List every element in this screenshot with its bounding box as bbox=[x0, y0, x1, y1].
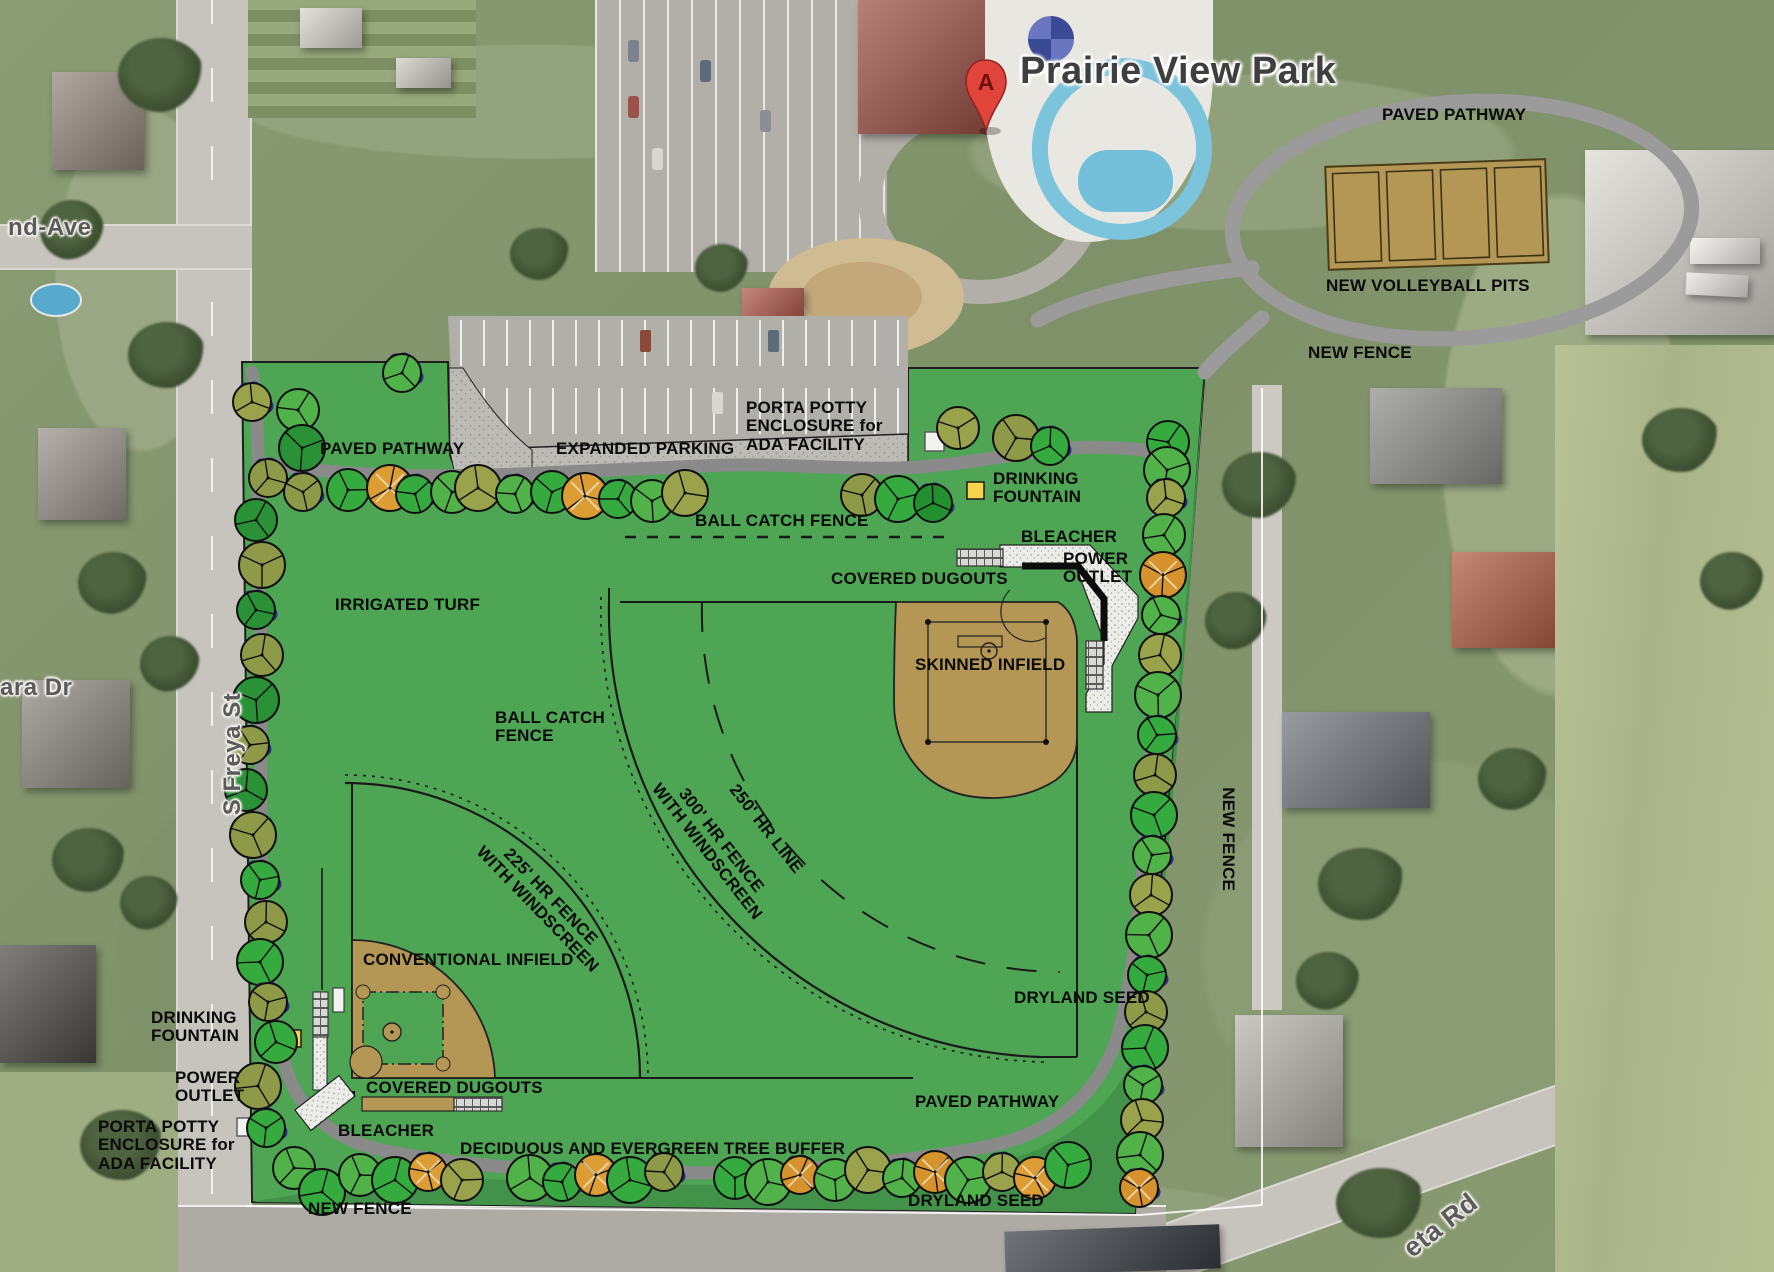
label-new-fence-s: NEW FENCE bbox=[308, 1200, 412, 1218]
park-title: Prairie View Park bbox=[1020, 52, 1336, 90]
label-porta-potty-sw: PORTA POTTY ENCLOSURE for ADA FACILITY bbox=[98, 1118, 235, 1173]
label-paved-pathway-nw: PAVED PATHWAY bbox=[320, 440, 464, 458]
street-ave: nd-Ave bbox=[8, 216, 91, 240]
label-dryland-seed-e: DRYLAND SEED bbox=[1014, 989, 1150, 1007]
label-new-fence-ne: NEW FENCE bbox=[1308, 344, 1412, 362]
plan-labels: Prairie View Park nd-Ave ara Dr S Freya … bbox=[0, 0, 1774, 1272]
street-dr: ara Dr bbox=[0, 676, 72, 700]
street-rd: eta Rd bbox=[1399, 1189, 1483, 1263]
label-covered-dugouts-sw: COVERED DUGOUTS bbox=[366, 1079, 543, 1097]
label-irrigated-turf: IRRIGATED TURF bbox=[335, 596, 480, 614]
park-site-plan-map[interactable]: A Prairie View Park nd-Ave ara Dr S Frey… bbox=[0, 0, 1774, 1272]
label-new-volleyball-pits: NEW VOLLEYBALL PITS bbox=[1326, 277, 1530, 295]
label-covered-dugouts-ne: COVERED DUGOUTS bbox=[831, 570, 1008, 588]
label-bleacher-sw: BLEACHER bbox=[338, 1122, 434, 1140]
label-paved-pathway-ne: PAVED PATHWAY bbox=[1382, 106, 1526, 124]
label-dryland-seed-s: DRYLAND SEED bbox=[908, 1192, 1044, 1210]
label-ball-catch-fence-w: BALL CATCH FENCE bbox=[495, 709, 605, 746]
label-skinned-infield: SKINNED INFIELD bbox=[915, 656, 1065, 674]
label-new-fence-e: NEW FENCE bbox=[1219, 787, 1237, 891]
label-paved-pathway-s: PAVED PATHWAY bbox=[915, 1093, 1059, 1111]
label-drinking-fountain-n: DRINKING FOUNTAIN bbox=[993, 470, 1081, 507]
label-drinking-fountain-sw: DRINKING FOUNTAIN bbox=[151, 1009, 239, 1046]
label-porta-potty-n: PORTA POTTY ENCLOSURE for ADA FACILITY bbox=[746, 399, 883, 454]
label-ball-catch-fence-n: BALL CATCH FENCE bbox=[695, 512, 869, 530]
label-300-hr-fence: 300' HR FENCE WITH WINDSCREEN bbox=[648, 769, 780, 923]
street-freya: S Freya St bbox=[221, 693, 245, 815]
label-conventional-infield: CONVENTIONAL INFIELD bbox=[363, 951, 574, 969]
label-bleacher-ne: BLEACHER bbox=[1021, 528, 1117, 546]
label-power-outlet-ne: POWER OUTLET bbox=[1063, 550, 1132, 587]
label-power-outlet-sw: POWER OUTLET bbox=[175, 1069, 244, 1106]
label-expanded-parking: EXPANDED PARKING bbox=[556, 440, 734, 458]
label-tree-buffer: DECIDUOUS AND EVERGREEN TREE BUFFER bbox=[460, 1140, 845, 1158]
